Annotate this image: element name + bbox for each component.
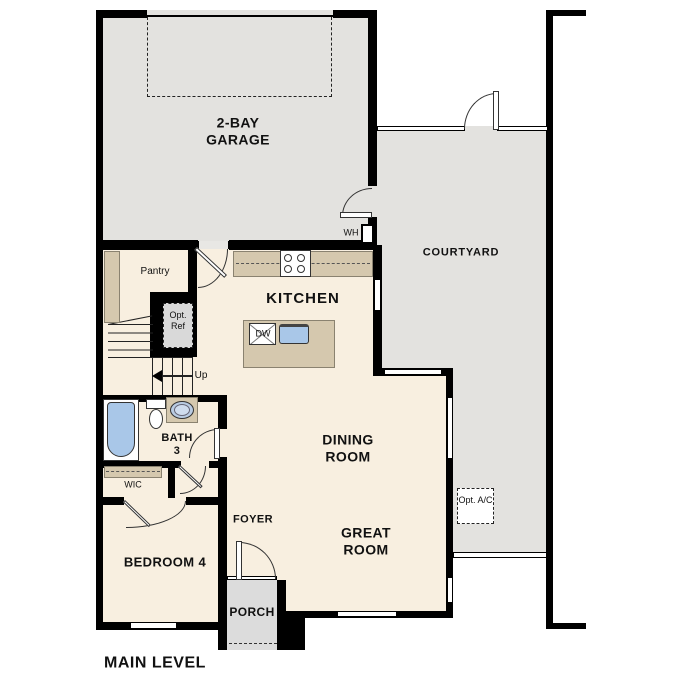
courtyard-top-wall-right (497, 126, 548, 131)
bedroom-label: BEDROOM 4 (124, 554, 206, 569)
garage-entry-threshold (198, 241, 229, 249)
foyer-label: FOYER (233, 514, 273, 527)
foyer-left-wall (218, 468, 227, 580)
garage-door-dashed-outline (147, 17, 332, 97)
stove-burner (284, 265, 292, 273)
bath-right-wall-upper (218, 399, 227, 429)
great-room-label: GREAT ROOM (341, 524, 391, 557)
right-property-wall-bottom-arm (546, 623, 586, 629)
bath-door-leaf (214, 428, 220, 459)
water-heater-box (361, 224, 374, 244)
toilet-tank (146, 399, 166, 409)
courtyard-gate-door-leaf (493, 91, 499, 130)
floor-plan: DW WH Opt. Ref Opt. A/C 2-BAY GARAGE COU… (0, 0, 687, 687)
kitchen-sink (279, 324, 309, 344)
pantry-label: Pantry (141, 266, 170, 278)
optional-ac-box: Opt. A/C (457, 488, 494, 524)
dining-room-label: DINING ROOM (322, 431, 373, 464)
wic-shelf-rod-dashed-line (106, 471, 160, 472)
great-room-rear-window (337, 611, 397, 617)
stove-burner (297, 265, 305, 273)
courtyard-label: COURTYARD (423, 247, 499, 260)
bath-sink-inner (174, 404, 190, 416)
garage-label: 2-BAY GARAGE (206, 114, 270, 147)
toilet-bowl (149, 409, 163, 429)
garage-top-wall-left (96, 10, 147, 18)
left-exterior-wall (96, 10, 103, 630)
wic-shelf (104, 466, 162, 478)
right-property-wall-top-arm (546, 10, 586, 16)
opt-ac-line1: Opt. (458, 495, 475, 505)
courtyard-floor-lower (446, 368, 548, 556)
stove-burner (297, 254, 305, 262)
front-door-leaf (236, 541, 242, 580)
pantry-shelf (104, 251, 120, 323)
stairs-direction-line (160, 375, 192, 377)
bedroom-top-wall-left (96, 497, 124, 505)
porch-corner-wall-mass (277, 611, 305, 650)
courtyard-top-wall-left (377, 126, 465, 131)
stove (280, 250, 311, 277)
opt-ac-line2: A/C (478, 495, 493, 505)
stairs-up-label: Up (195, 370, 208, 382)
right-property-wall (546, 10, 553, 629)
stairs-direction-arrowhead (152, 370, 162, 382)
opt-ref-line1: Opt. (169, 310, 186, 320)
kitchen-label: KITCHEN (266, 290, 340, 308)
great-room-side-window (447, 577, 453, 603)
garage-bottom-wall-right (229, 240, 377, 250)
dishwasher-label: DW (256, 329, 271, 340)
dining-side-window (447, 397, 453, 459)
bathtub (107, 402, 135, 457)
kitchen-window (374, 279, 381, 311)
porch-edge-dashed-line (229, 643, 277, 644)
wic-label: WIC (124, 480, 142, 491)
porch-left-wall (218, 580, 227, 650)
porch-right-wall (277, 580, 286, 613)
porch-label: PORCH (229, 605, 274, 619)
dining-jog-window (384, 369, 442, 375)
garage-right-wall-upper (368, 10, 377, 186)
garage-bottom-wall-left (96, 240, 198, 250)
courtyard-bottom-wall (453, 552, 547, 558)
optional-refrigerator-box: Opt. Ref (163, 303, 193, 348)
stairs-upper-flight (108, 324, 153, 358)
garage-courtyard-door-leaf (340, 212, 372, 218)
plan-title: MAIN LEVEL (104, 655, 206, 674)
water-heater-label: WH (344, 228, 359, 239)
wic-right-wall (168, 468, 175, 498)
garage-door-header-line (147, 15, 333, 17)
stove-burner (284, 254, 292, 262)
bedroom-window (130, 622, 177, 629)
opt-ref-line2: Ref (171, 321, 185, 331)
bath-label: BATH 3 (161, 432, 192, 458)
bath-bottom-wall-right (209, 461, 227, 468)
